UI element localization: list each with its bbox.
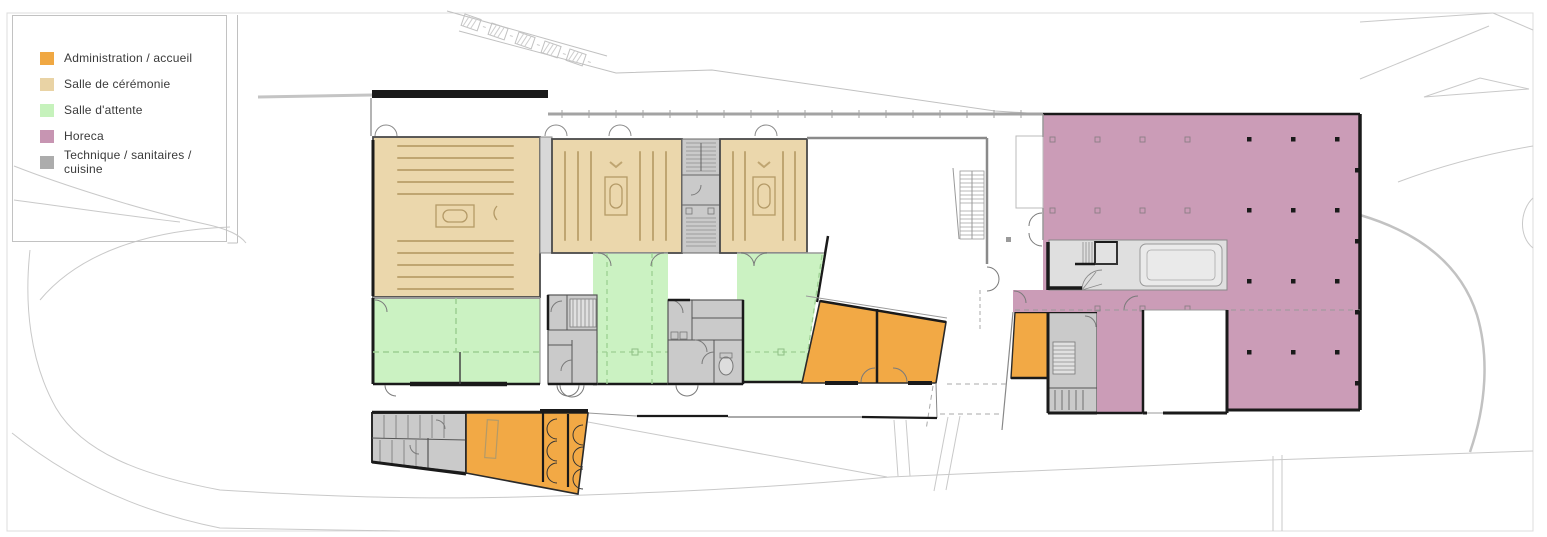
legend-item-ceremony: Salle de cérémonie <box>13 71 226 97</box>
administration-offices <box>802 296 947 383</box>
legend-label-ceremony: Salle de cérémonie <box>64 77 170 91</box>
legend-item-horeca: Horeca <box>13 123 226 149</box>
exterior-staircase <box>953 168 984 239</box>
legend-swatch-horeca <box>40 130 54 143</box>
legend-swatch-waiting <box>40 104 54 117</box>
vestibule-strip <box>540 137 552 253</box>
ceremony-hall-small <box>720 139 807 253</box>
floor-plan-page: Administration / accueil Salle de cérémo… <box>0 0 1547 537</box>
legend-item-waiting: Salle d'attente <box>13 97 226 123</box>
ceremony-hall-large <box>373 137 540 297</box>
parking-area <box>447 11 1043 114</box>
canopy-line <box>548 110 1043 118</box>
technical-core-east <box>1048 312 1097 413</box>
parking-stall <box>461 14 488 33</box>
legend-item-technical: Technique / sanitaires / cuisine <box>13 149 226 175</box>
entrance-door-arcs <box>375 125 777 136</box>
waiting-area-2 <box>593 253 668 384</box>
facade-notch <box>1016 136 1043 208</box>
legend-label-admin: Administration / accueil <box>64 51 192 65</box>
north-wall <box>371 90 548 136</box>
legend-label-horeca: Horeca <box>64 129 104 143</box>
storage-room <box>1143 310 1227 413</box>
parking-stall <box>488 23 515 42</box>
legend-label-waiting: Salle d'attente <box>64 103 143 117</box>
technical-core-stairs <box>548 295 597 396</box>
site-plan-drawing <box>0 0 1547 537</box>
legend-label-technical: Technique / sanitaires / cuisine <box>64 148 226 176</box>
legend-swatch-ceremony <box>40 78 54 91</box>
sanitary-wing <box>372 413 466 474</box>
legend-swatch-technical <box>40 156 54 169</box>
technical-core-center <box>682 139 720 253</box>
ceremony-hall-medium <box>552 139 682 253</box>
technical-core-wc <box>668 300 743 396</box>
waiting-area-1 <box>373 298 540 396</box>
legend-swatch-admin <box>40 52 54 65</box>
legend: Administration / accueil Salle de cérémo… <box>12 15 227 242</box>
legend-item-admin: Administration / accueil <box>13 45 226 71</box>
kitchen-block <box>1048 240 1227 290</box>
parking-stall <box>515 32 542 51</box>
